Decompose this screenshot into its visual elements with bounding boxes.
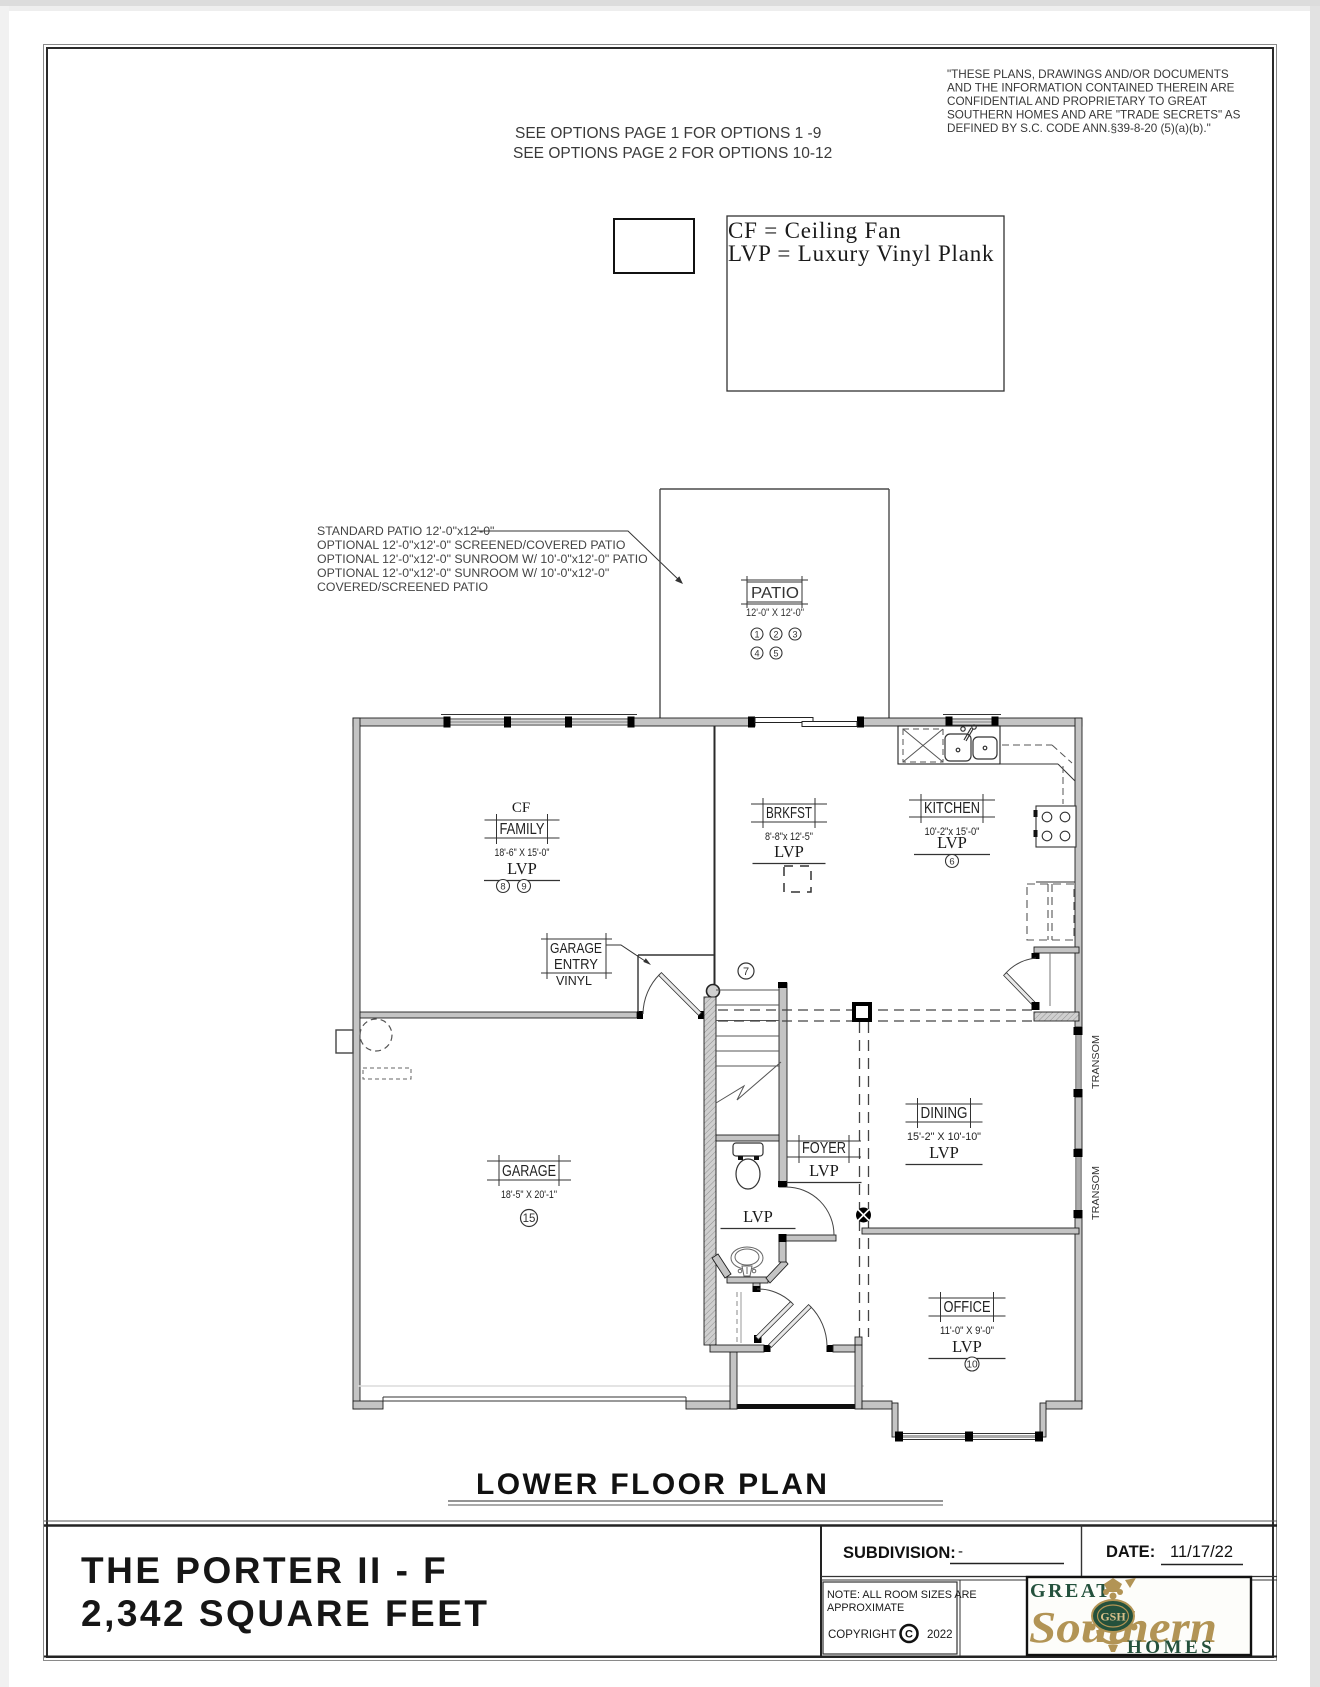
svg-text:DATE:: DATE:: [1106, 1543, 1155, 1561]
svg-text:LVP: LVP: [774, 842, 804, 861]
svg-text:15'-2" X 10'-10": 15'-2" X 10'-10": [907, 1131, 981, 1143]
svg-text:TRANSOM: TRANSOM: [1090, 1166, 1102, 1220]
svg-text:BRKFST: BRKFST: [766, 805, 812, 822]
svg-text:3: 3: [792, 630, 797, 640]
svg-text:DEFINED BY S.C. CODE ANN.§39-8: DEFINED BY S.C. CODE ANN.§39-8-20 (5)(a)…: [947, 122, 1211, 135]
svg-text:GARAGE: GARAGE: [550, 941, 602, 957]
svg-text:"THESE PLANS, DRAWINGS AND/OR: "THESE PLANS, DRAWINGS AND/OR DOCUMENTS: [947, 68, 1229, 81]
svg-text:LVP: LVP: [952, 1337, 982, 1356]
svg-text:FOYER: FOYER: [802, 1140, 846, 1157]
svg-text:11'-0" X 9'-0": 11'-0" X 9'-0": [940, 1325, 994, 1337]
svg-text:OFFICE: OFFICE: [944, 1299, 991, 1316]
svg-text:GARAGE: GARAGE: [502, 1163, 556, 1180]
svg-text:-: -: [958, 1543, 963, 1560]
svg-text:CF: CF: [512, 800, 530, 816]
svg-text:2,342 SQUARE FEET: 2,342 SQUARE FEET: [81, 1593, 490, 1634]
svg-text:CF = Ceiling Fan: CF = Ceiling Fan: [728, 218, 901, 243]
svg-text:FAMILY: FAMILY: [500, 821, 545, 838]
svg-text:8: 8: [500, 881, 505, 892]
svg-text:5: 5: [773, 649, 778, 659]
svg-text:2: 2: [773, 630, 778, 640]
svg-text:SEE OPTIONS PAGE 1 FOR OPTIONS: SEE OPTIONS PAGE 1 FOR OPTIONS 1 -9: [515, 125, 821, 142]
svg-text:LVP: LVP: [507, 859, 537, 878]
svg-text:CONFIDENTIAL AND PROPRIETARY T: CONFIDENTIAL AND PROPRIETARY TO GREAT: [947, 95, 1207, 108]
svg-text:LVP: LVP: [929, 1143, 959, 1162]
svg-text:COVERED/SCREENED PATIO: COVERED/SCREENED PATIO: [317, 580, 488, 594]
svg-text:COPYRIGHT: COPYRIGHT: [828, 1629, 896, 1641]
svg-text:15: 15: [523, 1213, 536, 1225]
svg-text:OPTIONAL 12'-0"x12'-0" SCREENE: OPTIONAL 12'-0"x12'-0" SCREENED/COVERED …: [317, 538, 625, 552]
svg-text:18'-6" X 15'-0": 18'-6" X 15'-0": [495, 847, 550, 859]
svg-text:STANDARD PATIO 12'-0"x12'-0": STANDARD PATIO 12'-0"x12'-0": [317, 524, 494, 538]
svg-text:18'-5" X 20'-1": 18'-5" X 20'-1": [501, 1189, 557, 1201]
svg-text:KITCHEN: KITCHEN: [924, 800, 980, 817]
svg-text:4: 4: [754, 649, 759, 659]
svg-text:APPROXIMATE: APPROXIMATE: [827, 1602, 904, 1614]
svg-text:LVP: LVP: [809, 1161, 839, 1180]
svg-text:C: C: [905, 1629, 913, 1641]
svg-text:SEE OPTIONS PAGE 2 FOR OPTIONS: SEE OPTIONS PAGE 2 FOR OPTIONS 10-12: [513, 145, 832, 162]
svg-text:VINYL: VINYL: [556, 974, 592, 988]
svg-text:OPTIONAL 12'-0"x12'-0" SUNROOM: OPTIONAL 12'-0"x12'-0" SUNROOM W/ 10'-0"…: [317, 552, 648, 566]
svg-text:6: 6: [949, 856, 954, 867]
svg-text:AND THE INFORMATION CONTAINED: AND THE INFORMATION CONTAINED THEREIN AR…: [947, 82, 1235, 95]
svg-text:HOMES: HOMES: [1127, 1637, 1215, 1658]
svg-text:DINING: DINING: [921, 1105, 968, 1122]
svg-text:THE PORTER II - F: THE PORTER II - F: [81, 1550, 448, 1591]
svg-text:7: 7: [743, 966, 749, 978]
svg-text:9: 9: [521, 881, 526, 892]
svg-text:1: 1: [754, 630, 759, 640]
svg-text:SOUTHERN HOMES AND ARE "TRADE: SOUTHERN HOMES AND ARE "TRADE SECRETS" A…: [947, 109, 1241, 122]
svg-text:SUBDIVISION:: SUBDIVISION:: [843, 1544, 956, 1562]
svg-text:11/17/22: 11/17/22: [1170, 1543, 1233, 1561]
svg-text:2022: 2022: [927, 1629, 953, 1641]
svg-text:PATIO: PATIO: [751, 585, 799, 602]
svg-text:GSH: GSH: [1100, 1610, 1126, 1624]
svg-text:LVP: LVP: [937, 833, 967, 852]
svg-text:ENTRY: ENTRY: [554, 957, 598, 973]
svg-text:NOTE: ALL ROOM SIZES ARE: NOTE: ALL ROOM SIZES ARE: [827, 1589, 977, 1601]
svg-text:GREAT: GREAT: [1030, 1580, 1112, 1602]
svg-text:12'-0" X 12'-0": 12'-0" X 12'-0": [746, 607, 804, 619]
svg-text:10: 10: [966, 1360, 978, 1371]
svg-text:LVP = Luxury Vinyl Plank: LVP = Luxury Vinyl Plank: [728, 241, 994, 266]
svg-text:OPTIONAL 12'-0"x12'-0" SUNROOM: OPTIONAL 12'-0"x12'-0" SUNROOM W/ 10'-0"…: [317, 566, 609, 580]
svg-text:TRANSOM: TRANSOM: [1090, 1035, 1102, 1089]
svg-text:LVP: LVP: [743, 1207, 773, 1226]
svg-text:LOWER FLOOR PLAN: LOWER FLOOR PLAN: [476, 1468, 829, 1501]
